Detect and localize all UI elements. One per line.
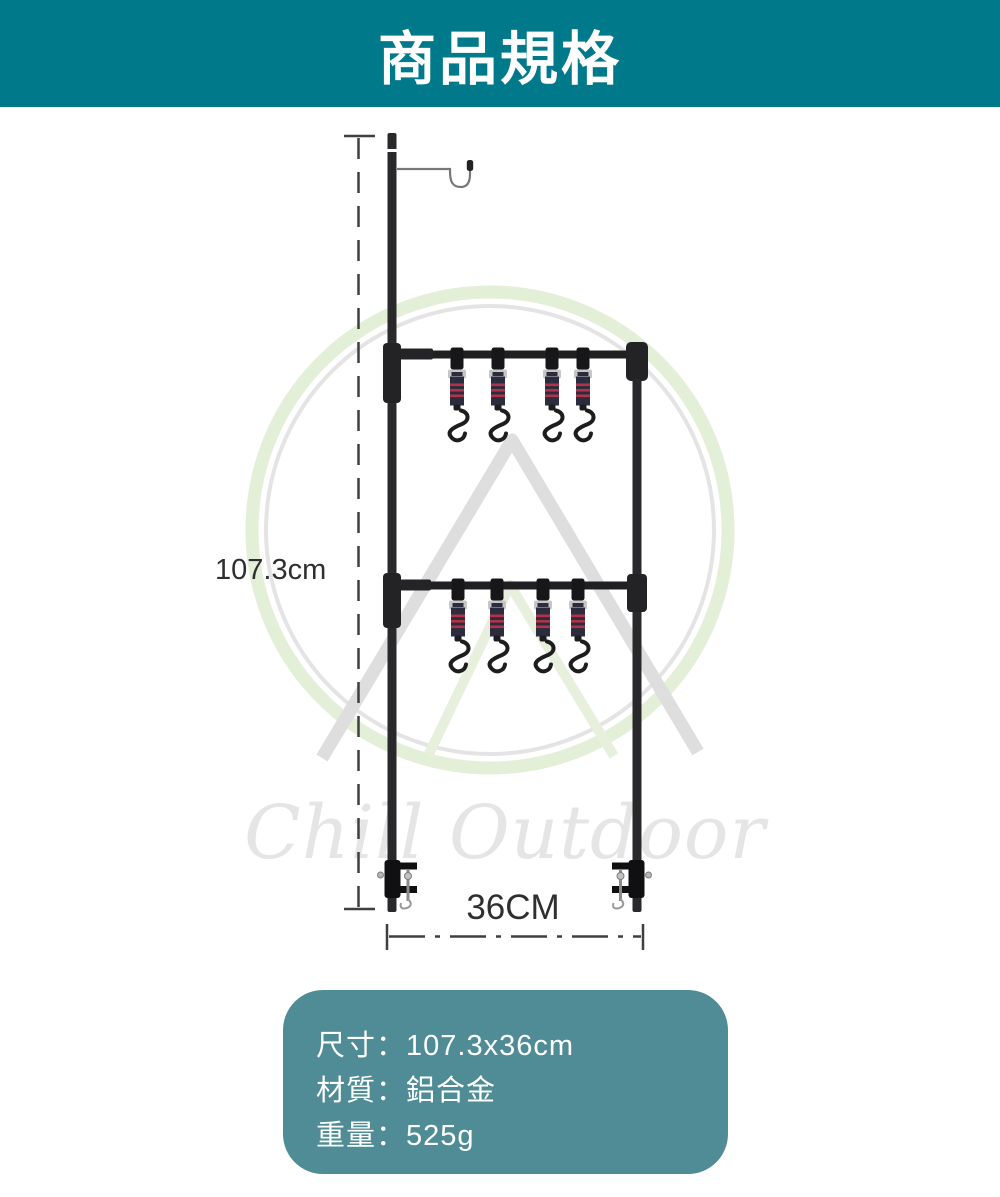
hook-strap: [574, 348, 594, 441]
hook-strap: [543, 348, 563, 441]
top-left-tee-joint: [383, 343, 401, 403]
second-bar: [396, 582, 636, 590]
spec-material: 材質：鋁合金: [316, 1069, 728, 1114]
hook-strap-row-top: [448, 348, 594, 441]
spec-weight: 重量：525g: [316, 1114, 728, 1159]
pole-joint-notch: [386, 149, 398, 152]
hook-strap: [449, 579, 469, 672]
top-right-elbow-joint: [626, 342, 648, 381]
hook-strap: [489, 348, 509, 441]
watermark-brand-text: Chill Outdoor: [244, 790, 769, 876]
spec-size: 尺寸：107.3x36cm: [316, 1024, 728, 1069]
height-dimension-label: 107.3cm: [215, 554, 326, 587]
second-right-tee-joint: [627, 574, 647, 612]
lantern-hook-arm: [397, 160, 473, 187]
width-dimension-label: 36CM: [466, 888, 559, 928]
lantern-hook-tip: [467, 160, 473, 171]
right-pole: [633, 379, 642, 912]
left-pole: [388, 133, 397, 912]
clamp-handle: [613, 899, 623, 908]
second-left-tee-joint: [383, 573, 401, 628]
hook-strap: [569, 579, 589, 672]
second-bar-sleeve: [400, 580, 431, 591]
clamp-handle: [401, 899, 411, 908]
top-bar-sleeve: [400, 349, 433, 360]
product-spec-page: 商品規格: [0, 0, 1000, 1197]
hook-strap: [448, 348, 468, 441]
watermark-outer-ring-icon: [252, 292, 728, 768]
clamp-wing-nut: [378, 872, 384, 878]
spec-box: 尺寸：107.3x36cm 材質：鋁合金 重量：525g: [283, 990, 728, 1174]
clamp-wing-nut: [646, 872, 652, 878]
